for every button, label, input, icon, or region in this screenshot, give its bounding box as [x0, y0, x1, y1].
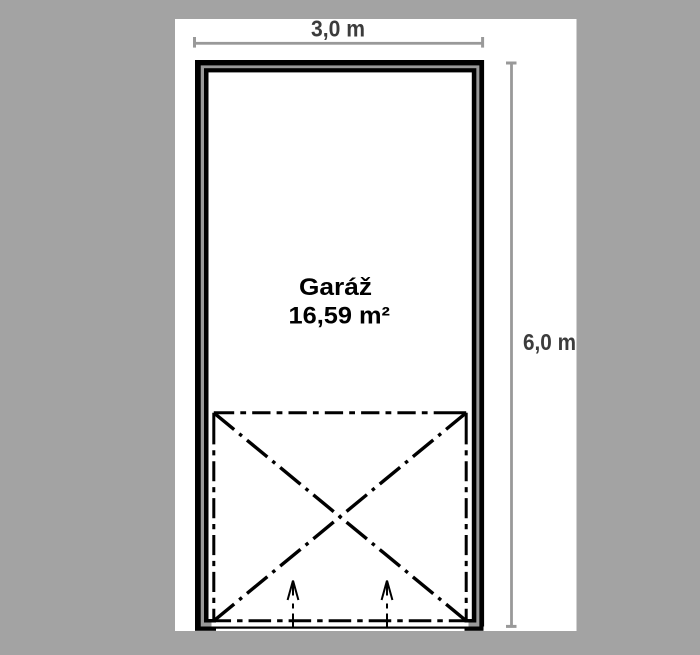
svg-text:6,0 m: 6,0 m — [523, 329, 576, 355]
svg-text:3,0 m: 3,0 m — [311, 16, 365, 42]
svg-text:16,59 m²: 16,59 m² — [289, 302, 391, 329]
svg-text:Garáž: Garáž — [299, 274, 372, 301]
